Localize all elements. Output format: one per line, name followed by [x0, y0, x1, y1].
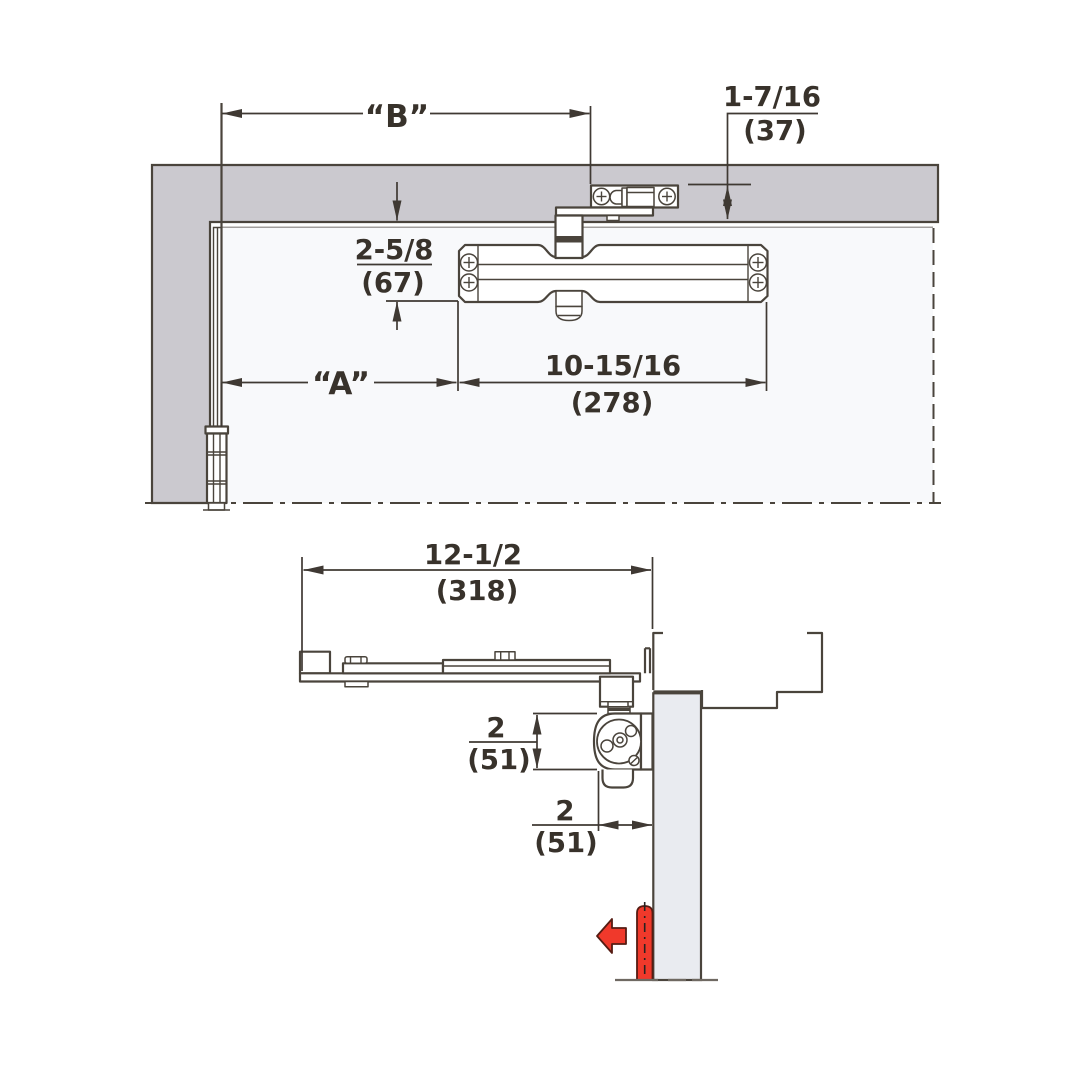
door-closer-dimension-diagram: “B” 1-7/16 (37) 2-5/8 (67) [0, 0, 1080, 1080]
closer-pinion-shaft [556, 216, 583, 259]
arm-nut [495, 652, 515, 660]
dim-overall-mm: (318) [436, 575, 519, 607]
dimension-offset: 2 (51) [532, 771, 652, 859]
dim-reveal-inches: 1-7/16 [723, 81, 821, 113]
dim-reveal-mm: (37) [743, 115, 806, 147]
dimension-projection: 2 (51) [467, 712, 597, 776]
door-swing-arrow [597, 919, 626, 953]
closer-body-end-view [594, 714, 653, 788]
valve-upper [626, 726, 637, 737]
dim-b-label: “B” [365, 99, 429, 135]
closer-bottom-tab [603, 770, 634, 788]
dim-drop-mm: (67) [361, 267, 424, 299]
closer-arm-plan [300, 652, 640, 714]
dim-offset-inches: 2 [555, 795, 574, 827]
valve-lower [601, 740, 613, 752]
forearm-knob [345, 657, 367, 664]
door-leaf-plan [653, 693, 701, 980]
forearm-segment [343, 663, 443, 673]
arm-clevis [610, 191, 622, 205]
dim-drop-inches: 2-5/8 [355, 234, 434, 266]
main-arm-bar [300, 673, 640, 681]
bracket-screw-right [659, 188, 675, 204]
bracket-screw-left [593, 188, 609, 204]
hinge-pin-tip [209, 503, 225, 510]
elevation-view: “B” 1-7/16 (37) 2-5/8 (67) [145, 81, 941, 510]
swing-indicator [597, 902, 653, 986]
dim-projection-mm: (51) [467, 744, 530, 776]
closer-valve-tab [556, 291, 582, 321]
dim-offset-mm: (51) [534, 827, 597, 859]
dim-projection-inches: 2 [486, 712, 505, 744]
arm-plate [556, 208, 653, 216]
dim-body-length-inches: 10-15/16 [545, 350, 681, 382]
plan-view: 12-1/2 (318) 2 (51) 2 (51) [300, 539, 822, 986]
dimension-overall: 12-1/2 (318) [302, 539, 653, 671]
dim-overall-inches: 12-1/2 [424, 539, 522, 571]
dim-body-length-mm: (278) [571, 387, 654, 419]
dim-a-label: “A” [312, 366, 370, 402]
arm-shoe [300, 652, 330, 674]
hinge [203, 427, 230, 511]
